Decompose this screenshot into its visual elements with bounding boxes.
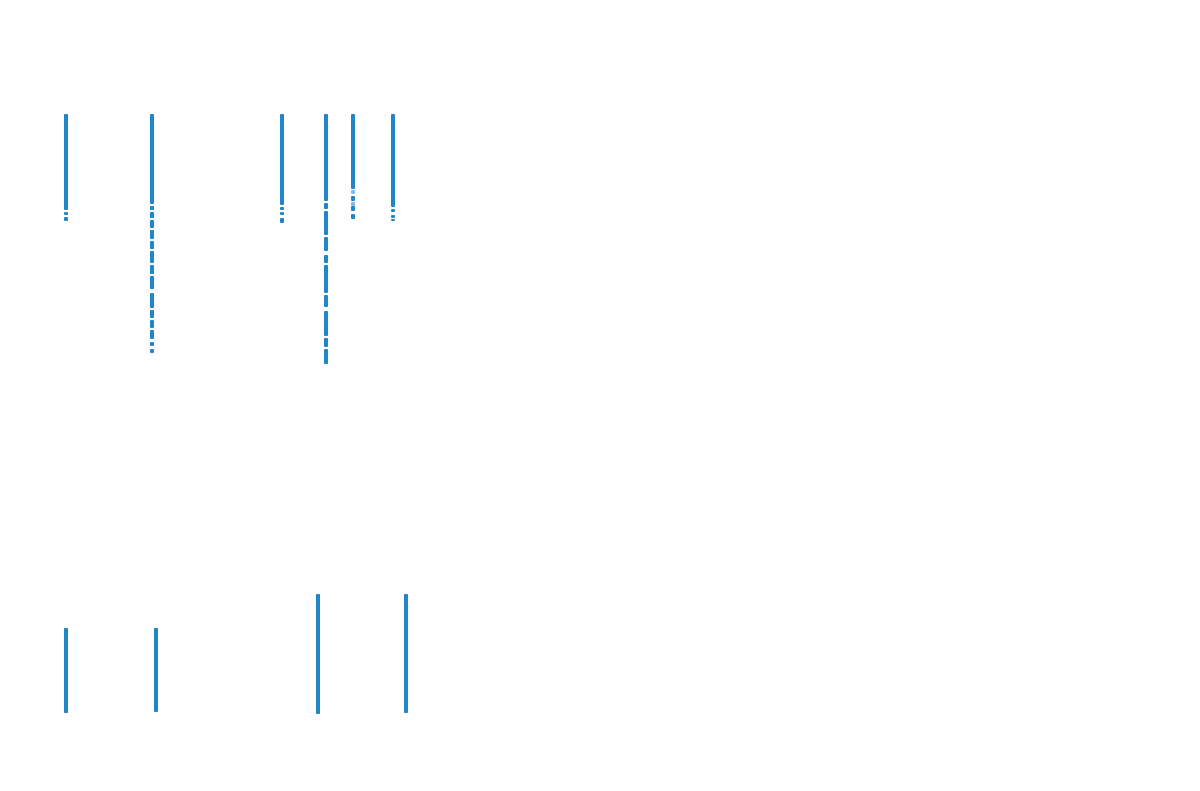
event-strip [150,206,154,210]
event-strip [391,215,395,218]
event-strip [324,203,328,209]
event-strip [351,190,355,194]
event-strip [150,320,154,328]
event-strip [280,207,284,210]
event-strip [150,251,154,263]
event-strip [324,114,328,201]
event-strip [150,265,154,274]
event-strip [280,114,284,205]
event-strip [64,217,68,221]
event-strip [150,114,154,204]
event-strip [324,295,328,307]
event-strip [324,265,328,293]
event-strip [316,594,320,714]
event-strip [280,218,284,223]
event-strip [154,628,158,712]
event-strip [351,206,355,211]
event-strip [150,310,154,318]
event-strip [150,212,154,218]
event-strip [324,311,328,336]
event-strip [150,230,154,239]
event-strip [324,211,328,235]
event-strip [150,241,154,249]
event-strip [391,219,395,221]
event-strip [64,212,68,215]
event-strip [64,114,68,210]
event-strip [64,628,68,713]
event-strip [150,342,154,346]
event-strip [324,338,328,347]
scatter-figure [0,0,1200,791]
event-strip [150,293,154,308]
event-strip [351,114,355,189]
event-strip [324,237,328,251]
event-strip [351,196,355,201]
event-strip [391,209,395,212]
event-strip [324,349,328,364]
event-strip [391,114,395,207]
event-strip [150,276,154,289]
event-strip [150,330,154,339]
event-strip [404,594,408,713]
event-strip [150,349,154,353]
event-strip [280,212,284,215]
strips-layer [0,0,1200,791]
event-strip [324,255,328,263]
event-strip [150,220,154,228]
event-strip [351,214,355,219]
